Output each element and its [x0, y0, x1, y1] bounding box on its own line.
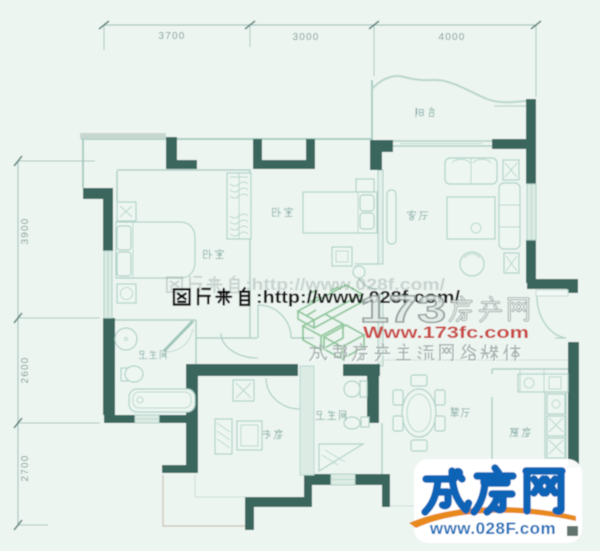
svg-text:Www.173fc.com: Www.173fc.com: [363, 323, 529, 342]
svg-text:2600: 2600: [20, 356, 31, 383]
svg-text:3700: 3700: [158, 31, 185, 42]
svg-text:www.028F.com: www.028F.com: [429, 519, 556, 538]
svg-text:3900: 3900: [20, 217, 31, 244]
svg-text:4000: 4000: [438, 32, 465, 43]
svg-text:3000: 3000: [292, 32, 319, 43]
svg-text:2700: 2700: [20, 454, 31, 481]
